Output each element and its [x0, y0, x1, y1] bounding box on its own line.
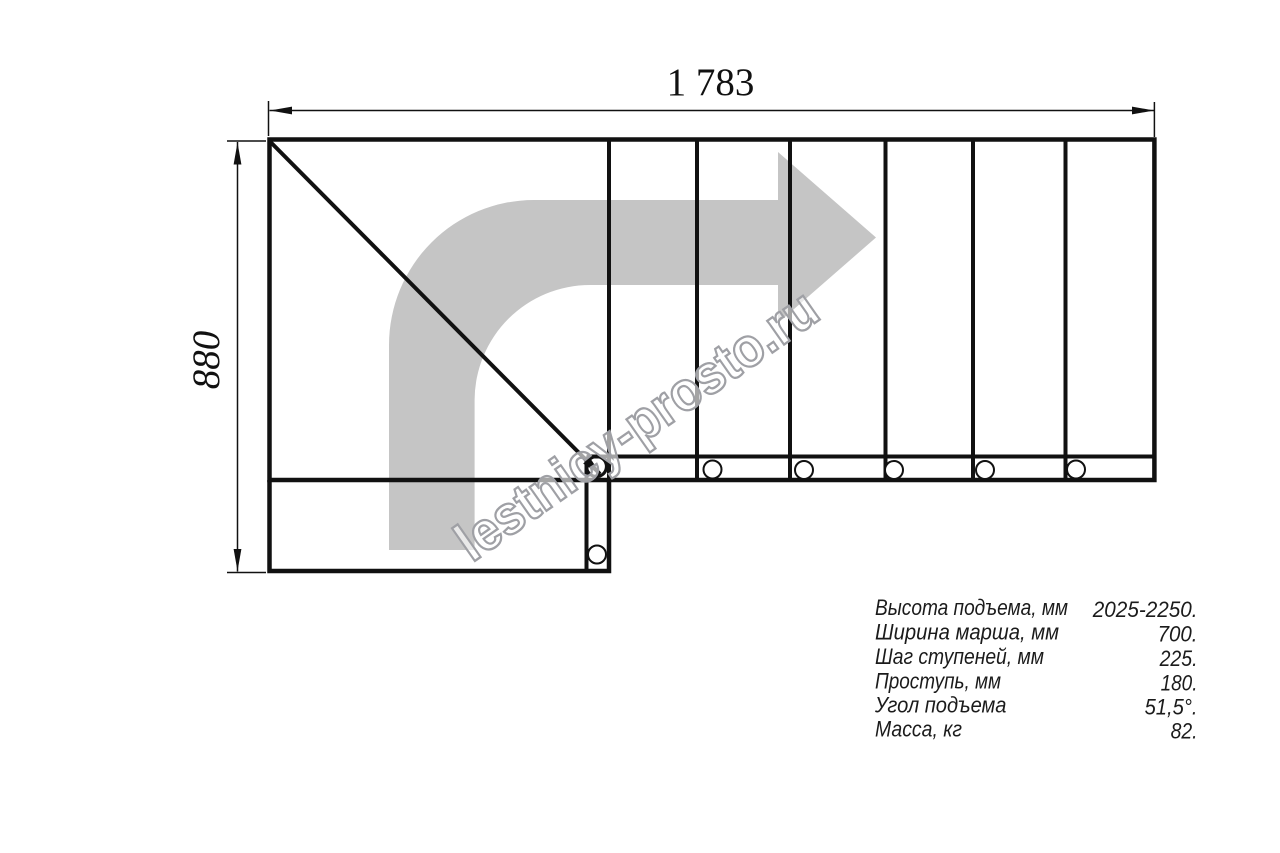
svg-text:1 783: 1 783 [667, 61, 755, 104]
svg-text:Шаг ступеней, мм: Шаг ступеней, мм [875, 644, 1044, 669]
svg-text:700.: 700. [1158, 622, 1198, 647]
svg-text:Масса, кг: Масса, кг [875, 717, 962, 742]
svg-text:Проступь, мм: Проступь, мм [875, 668, 1001, 693]
svg-text:880: 880 [185, 331, 228, 390]
svg-text:180.: 180. [1161, 670, 1198, 695]
svg-text:51,5°.: 51,5°. [1145, 695, 1198, 720]
svg-text:Высота подъема, мм: Высота подъема, мм [875, 595, 1068, 620]
svg-text:225.: 225. [1159, 646, 1198, 671]
svg-text:2025-2250.: 2025-2250. [1092, 597, 1198, 622]
svg-text:82.: 82. [1171, 719, 1198, 744]
svg-text:Угол подъема: Угол подъема [874, 693, 1006, 718]
svg-text:Ширина марша, мм: Ширина марша, мм [875, 620, 1059, 645]
